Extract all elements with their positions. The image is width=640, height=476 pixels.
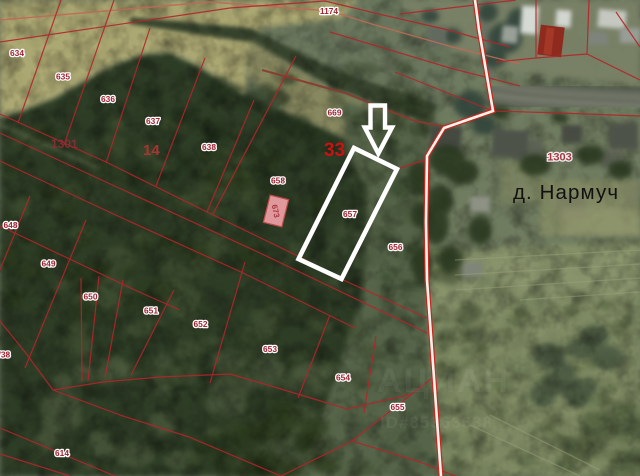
svg-text:658: 658: [271, 176, 285, 186]
svg-text:653: 653: [263, 344, 277, 354]
svg-text:1174: 1174: [320, 6, 339, 16]
svg-text:614: 614: [55, 448, 69, 458]
svg-text:650: 650: [84, 292, 98, 302]
svg-text:635: 635: [56, 72, 70, 82]
svg-text:636: 636: [101, 94, 115, 104]
svg-text:1303: 1303: [547, 152, 571, 164]
svg-text:АЦИАН: АЦИАН: [377, 362, 510, 400]
svg-text:ID#85363638: ID#85363638: [380, 413, 493, 432]
svg-text:1301: 1301: [51, 137, 78, 151]
svg-text:649: 649: [42, 259, 56, 269]
svg-text:638: 638: [202, 142, 216, 152]
svg-text:654: 654: [336, 373, 350, 383]
svg-text:33: 33: [324, 140, 345, 161]
svg-text:634: 634: [10, 48, 24, 58]
svg-text:651: 651: [144, 306, 158, 316]
svg-text:656: 656: [389, 242, 403, 252]
svg-text:д. Нармуч: д. Нармуч: [513, 181, 619, 204]
svg-text:657: 657: [343, 209, 357, 219]
svg-text:637: 637: [146, 116, 160, 126]
svg-text:3/38: 3/38: [0, 350, 10, 360]
svg-text:669: 669: [328, 108, 342, 118]
svg-text:652: 652: [194, 319, 208, 329]
svg-text:648: 648: [4, 220, 18, 230]
svg-text:655: 655: [391, 402, 405, 412]
svg-text:14: 14: [143, 142, 160, 159]
